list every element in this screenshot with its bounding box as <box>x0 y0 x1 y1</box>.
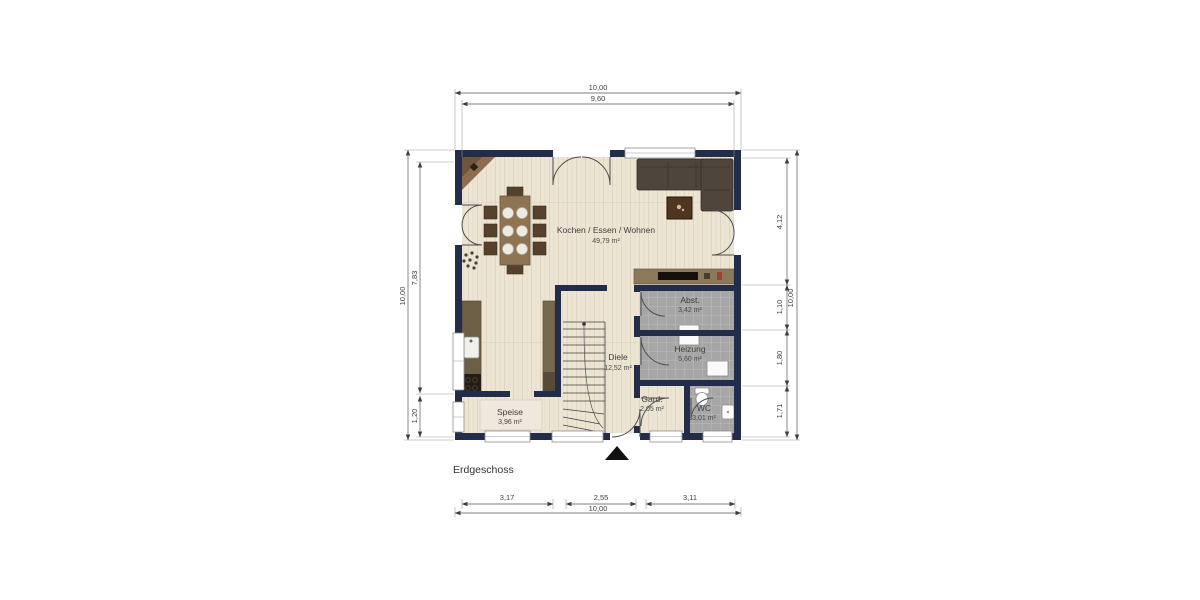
dim-left-upper: 7,83 <box>410 271 419 286</box>
dim-left-lower: 1,20 <box>410 409 419 424</box>
room-label-abst: Abst. <box>680 295 699 305</box>
dimensions-left: 10,00 7,83 1,20 <box>398 150 454 440</box>
room-area-heizung: 5,60 m² <box>678 356 702 363</box>
room-area-diele: 12,52 m² <box>604 365 632 372</box>
room-area-abst: 3,42 m² <box>678 307 702 314</box>
dim-top-total: 10,00 <box>589 83 608 92</box>
dim-right-seg1: 4,12 <box>775 215 784 230</box>
washbasin <box>722 405 734 419</box>
dim-left-total: 10,00 <box>398 287 407 306</box>
room-label-heizung: Heizung <box>674 344 705 354</box>
entrance-arrow <box>605 446 629 460</box>
dim-bottom-seg2: 2,55 <box>594 493 609 502</box>
dim-bottom-total: 10,00 <box>589 504 608 513</box>
dimensions-right: 10,00 4,12 1,10 1,80 1,71 <box>742 150 800 440</box>
floor-plan-page: Kochen / Essen / Wohnen 49,79 m² Abst. 3… <box>0 0 1200 600</box>
room-area-living: 49,79 m² <box>592 238 620 245</box>
kitchen-counter-left <box>462 301 481 394</box>
dimensions-top: 10,00 9,60 <box>455 83 741 157</box>
window-left-kitchen <box>453 333 464 390</box>
dim-right-seg2: 1,10 <box>775 300 784 315</box>
coffee-table <box>667 197 692 219</box>
dim-right-seg4: 1,71 <box>775 404 784 419</box>
dimensions-bottom: 3,17 2,55 3,11 10,00 <box>455 493 741 517</box>
room-label-speise: Speise <box>497 407 523 417</box>
room-label-gard: Gard. <box>641 394 662 404</box>
room-label-diele: Diele <box>608 352 628 362</box>
plan-title: Erdgeschoss <box>453 464 514 476</box>
room-label-living: Kochen / Essen / Wohnen <box>557 225 655 235</box>
dim-bottom-seg1: 3,17 <box>500 493 515 502</box>
room-label-wc: WC <box>697 403 711 413</box>
room-area-speise: 3,96 m² <box>498 419 522 426</box>
dim-right-seg3: 1,80 <box>775 351 784 366</box>
dim-top-inner: 9,60 <box>591 94 606 103</box>
room-area-gard: 2,05 m² <box>640 406 664 413</box>
dim-bottom-seg3: 3,11 <box>683 493 697 502</box>
room-area-wc: 3,01 m² <box>692 415 716 422</box>
kitchen-counter-right <box>543 301 555 394</box>
floor-plan-drawing: Kochen / Essen / Wohnen 49,79 m² Abst. 3… <box>0 0 1200 600</box>
tv-sideboard <box>634 269 734 284</box>
